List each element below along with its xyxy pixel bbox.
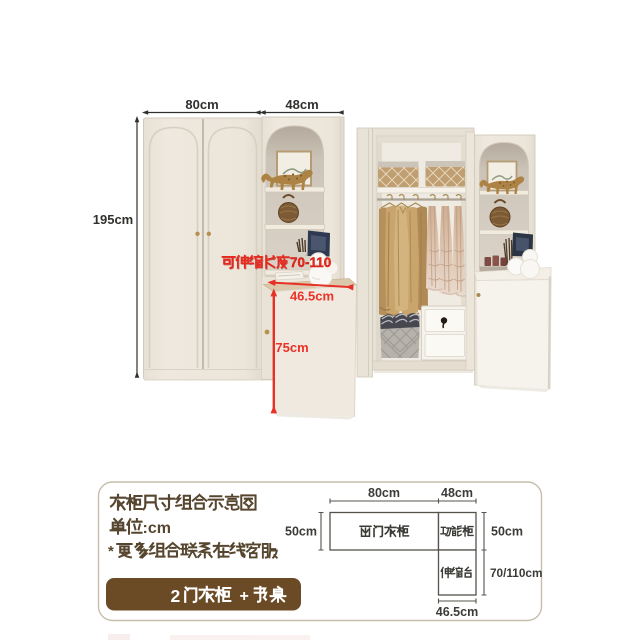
svg-text:50cm: 50cm <box>491 525 523 539</box>
svg-text:195cm: 195cm <box>93 212 133 227</box>
svg-text:70/110cm: 70/110cm <box>490 566 542 580</box>
svg-text:2: 2 <box>171 586 181 606</box>
svg-text::cm: :cm <box>143 520 171 537</box>
svg-text:48cm: 48cm <box>285 97 318 112</box>
svg-text:75cm: 75cm <box>275 340 308 355</box>
svg-text:48cm: 48cm <box>441 486 473 500</box>
svg-text:50cm: 50cm <box>285 525 317 539</box>
svg-text:46.5cm: 46.5cm <box>290 289 334 304</box>
svg-text:70-110: 70-110 <box>290 255 331 270</box>
svg-text:46.5cm: 46.5cm <box>436 605 478 619</box>
svg-text:*: * <box>108 543 114 560</box>
svg-text:+: + <box>240 588 249 605</box>
svg-text:80cm: 80cm <box>368 486 400 500</box>
svg-text:80cm: 80cm <box>185 97 218 112</box>
